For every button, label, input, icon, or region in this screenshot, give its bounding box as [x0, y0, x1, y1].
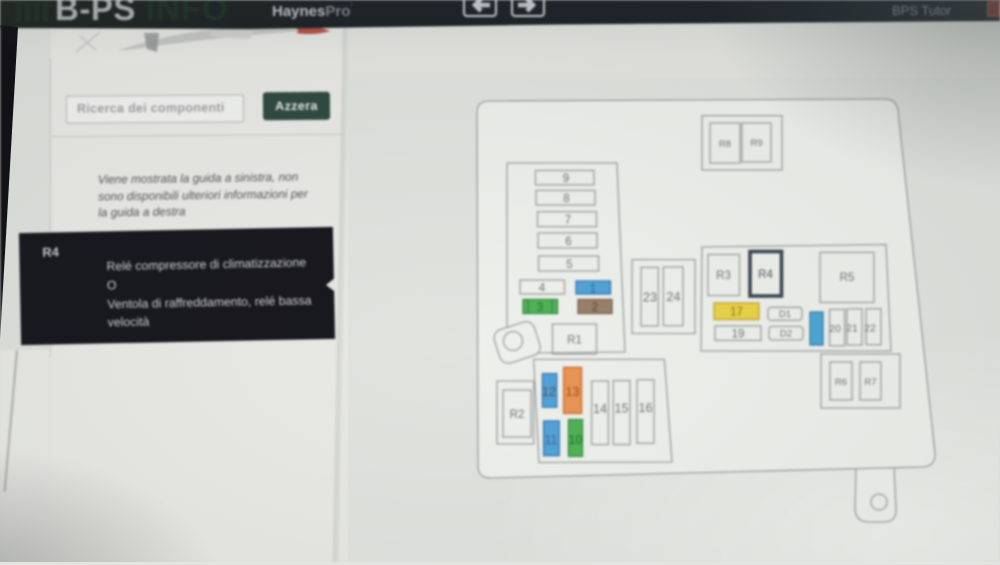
- svg-text:19: 19: [732, 329, 745, 341]
- svg-text:D2: D2: [780, 329, 792, 340]
- svg-text:22: 22: [864, 323, 876, 335]
- svg-text:12: 12: [542, 385, 556, 399]
- svg-text:D1: D1: [779, 309, 791, 320]
- svg-text:5: 5: [566, 259, 572, 271]
- svg-text:R1: R1: [567, 335, 582, 347]
- svg-text:23: 23: [643, 291, 657, 305]
- svg-text:21: 21: [846, 323, 858, 335]
- svg-text:R9: R9: [750, 138, 762, 149]
- svg-text:R4: R4: [758, 269, 773, 281]
- svg-text:4: 4: [539, 283, 546, 295]
- svg-text:2: 2: [592, 302, 598, 314]
- svg-text:R3: R3: [716, 270, 731, 282]
- svg-text:1: 1: [590, 284, 596, 296]
- svg-text:17: 17: [730, 307, 743, 319]
- svg-text:15: 15: [615, 402, 629, 416]
- svg-text:R6: R6: [835, 377, 847, 388]
- svg-text:14: 14: [593, 402, 607, 416]
- svg-text:24: 24: [667, 290, 681, 304]
- svg-text:R5: R5: [840, 272, 855, 284]
- svg-text:20: 20: [829, 323, 841, 335]
- svg-text:16: 16: [639, 401, 653, 415]
- svg-text:11: 11: [545, 433, 558, 447]
- svg-text:9: 9: [563, 173, 569, 185]
- svg-text:10: 10: [569, 433, 583, 447]
- svg-text:7: 7: [565, 215, 571, 227]
- svg-text:3: 3: [537, 302, 543, 314]
- svg-text:8: 8: [563, 193, 569, 205]
- svg-text:R2: R2: [510, 409, 525, 421]
- svg-text:13: 13: [566, 385, 580, 399]
- svg-text:R8: R8: [719, 139, 731, 150]
- svg-text:R7: R7: [864, 377, 876, 388]
- svg-text:6: 6: [565, 236, 571, 248]
